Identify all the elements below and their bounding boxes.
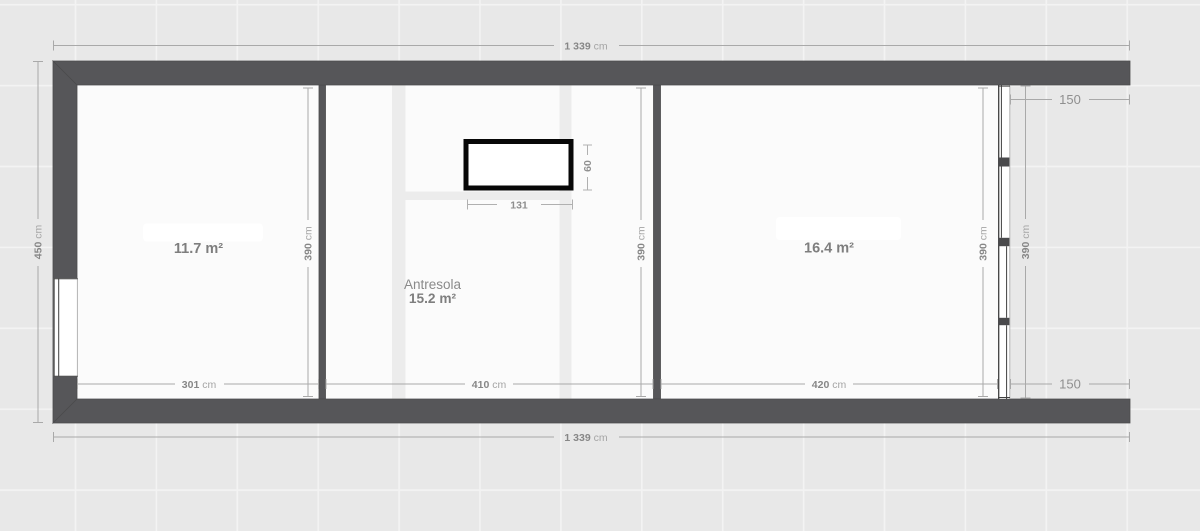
svg-text:410 cm: 410 cm bbox=[472, 379, 507, 391]
svg-text:16.4 m²: 16.4 m² bbox=[804, 241, 854, 257]
svg-text:450 cm: 450 cm bbox=[33, 225, 45, 260]
svg-text:150: 150 bbox=[1059, 92, 1081, 107]
svg-text:390 cm: 390 cm bbox=[636, 226, 648, 261]
svg-text:15.2 m²: 15.2 m² bbox=[409, 291, 457, 306]
svg-text:301 cm: 301 cm bbox=[182, 379, 217, 391]
svg-text:Antresola: Antresola bbox=[404, 277, 462, 292]
svg-text:390 cm: 390 cm bbox=[303, 226, 315, 261]
svg-text:1 339 cm: 1 339 cm bbox=[564, 40, 607, 52]
svg-text:390 cm: 390 cm bbox=[978, 226, 990, 261]
svg-text:60: 60 bbox=[582, 160, 594, 172]
svg-text:11.7 m²: 11.7 m² bbox=[174, 241, 223, 257]
svg-text:150: 150 bbox=[1059, 377, 1081, 392]
svg-text:420 cm: 420 cm bbox=[812, 379, 847, 391]
svg-text:1 339 cm: 1 339 cm bbox=[564, 432, 607, 444]
svg-text:390 cm: 390 cm bbox=[1020, 225, 1032, 260]
svg-text:131: 131 bbox=[510, 199, 528, 211]
